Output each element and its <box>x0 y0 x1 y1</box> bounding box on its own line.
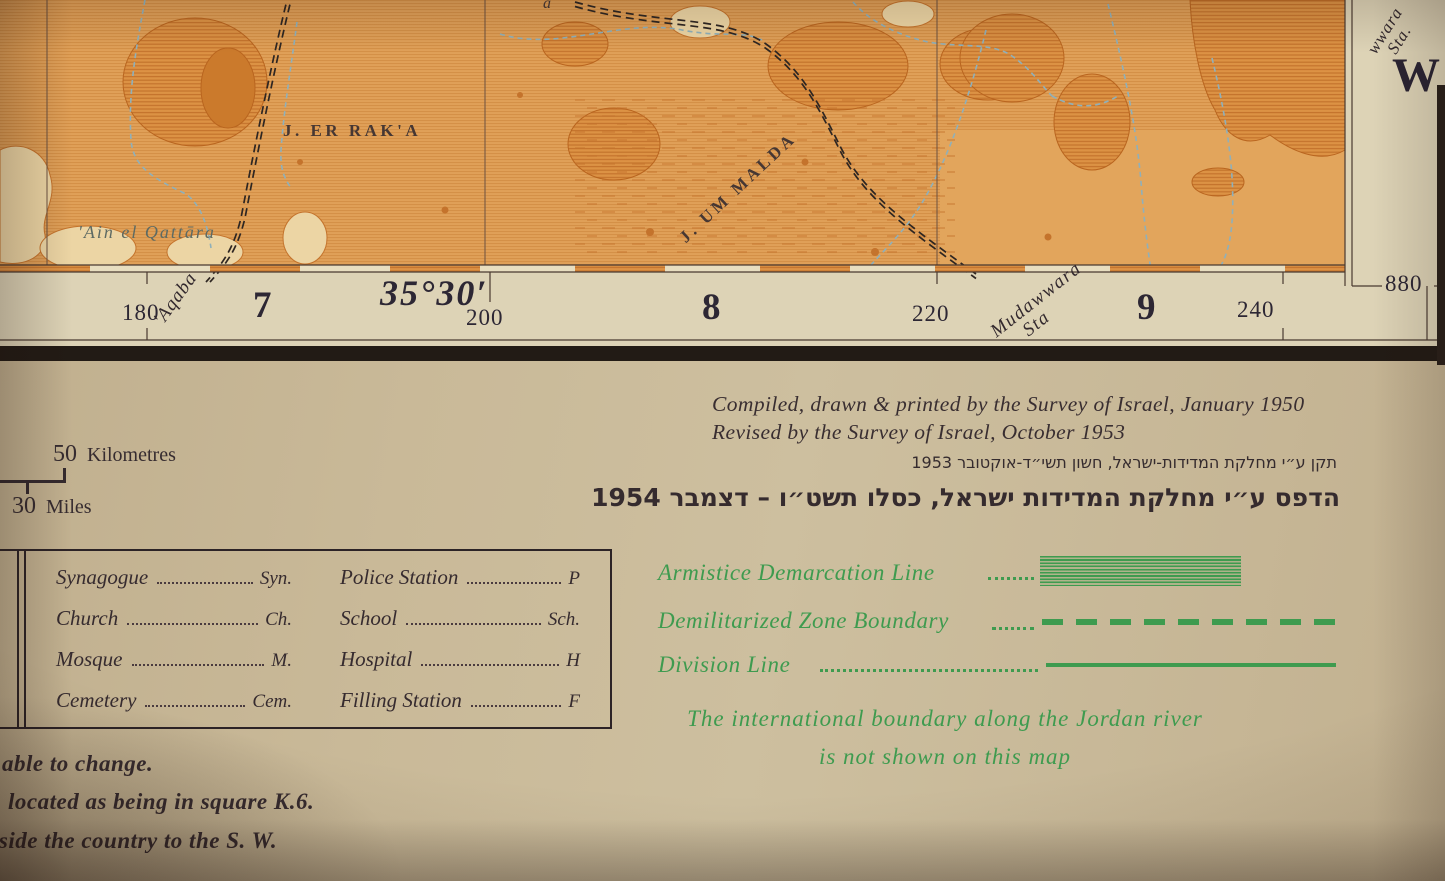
credit-line-1: Compiled, drawn & printed by the Survey … <box>712 392 1304 417</box>
hebrew-credit-2: הדפס ע״י מחלקת המדידות ישראל, כסלו תשט״ו… <box>591 483 1340 512</box>
legend-label: Synagogue <box>56 565 148 590</box>
grid-label-240: 240 <box>1237 297 1275 323</box>
legend-row-synagogue: SynagogueSyn. <box>56 565 292 590</box>
dotted-leader <box>471 705 561 707</box>
square-label-8: 8 <box>702 286 721 329</box>
grid-label-220: 220 <box>912 301 950 327</box>
hill-core <box>201 48 255 128</box>
dotted-leader <box>406 623 541 625</box>
map-photograph: J. ER RAK'A J. UM MALDA 'Ain el Qattāra … <box>0 0 1445 881</box>
boundary-note-line-2: is not shown on this map <box>595 744 1295 770</box>
legend-double-rule-1 <box>17 549 19 729</box>
boundary-note-line-1: The international boundary along the Jor… <box>595 706 1295 732</box>
legend-label: Police Station <box>340 565 458 590</box>
map-area: J. ER RAK'A J. UM MALDA 'Ain el Qattāra … <box>0 0 1445 348</box>
bottom-margin <box>0 272 1445 348</box>
marginal-note-3: tside the country to the S. W. <box>0 828 277 854</box>
square-label-9: 9 <box>1137 286 1156 329</box>
sheet-border-bar <box>0 346 1445 361</box>
legend-row-church: ChurchCh. <box>56 606 292 631</box>
northing-label-880: 880 <box>1385 271 1423 297</box>
legend-column-left: SynagogueSyn. ChurchCh. MosqueM. Cemeter… <box>56 565 292 713</box>
legend-abbr: Ch. <box>265 609 292 631</box>
division-line-symbol <box>1046 663 1336 667</box>
legend-row-police-station: Police StationP <box>340 565 580 590</box>
legend-row-cemetery: CemeteryCem. <box>56 688 292 713</box>
square-label-7: 7 <box>253 284 272 327</box>
scale-bar-tick-miles <box>26 480 29 494</box>
legend-row-hospital: HospitalH <box>340 647 580 672</box>
legend-label: School <box>340 606 397 631</box>
scale-km-unit: Kilometres <box>87 444 176 466</box>
sheet-letter-w: W <box>1392 48 1440 103</box>
credit-line-2: Revised by the Survey of Israel, October… <box>712 420 1125 445</box>
armistice-band-symbol <box>1040 556 1241 586</box>
legend-abbr: Syn. <box>260 568 292 590</box>
scale-miles-value: 30 <box>12 493 36 519</box>
legend-abbr: M. <box>271 650 292 672</box>
legend-abbr: P <box>568 568 580 590</box>
legend-label: Filling Station <box>340 688 462 713</box>
scale-bar-tick-km <box>63 468 66 482</box>
grid-label-200: 200 <box>466 305 504 331</box>
legend-label: Mosque <box>56 647 123 672</box>
scale-miles-unit: Miles <box>46 496 92 518</box>
dotted-leader <box>127 623 258 625</box>
marginal-note-1: able to change. <box>2 751 153 777</box>
legend-label: Hospital <box>340 647 412 672</box>
terrain-graphic <box>0 0 1445 348</box>
dmz-dash-symbol <box>1042 619 1342 625</box>
dotted-leader <box>132 664 265 666</box>
scale-km-value: 50 <box>53 441 77 467</box>
dotted-leader <box>145 705 245 707</box>
label-ain-el-qattara: 'Ain el Qattāra <box>78 222 216 243</box>
legend-row-school: SchoolSch. <box>340 606 580 631</box>
legend-column-right: Police StationP SchoolSch. HospitalH Fil… <box>340 565 580 713</box>
scale-miles-label: 30Miles <box>12 493 92 520</box>
legend-abbr: Sch. <box>548 609 580 631</box>
marginal-note-2: located as being in square K.6. <box>8 789 314 815</box>
sheet-border-right <box>1437 85 1445 365</box>
label-top-fragment: a <box>543 0 551 13</box>
scale-bar-line <box>0 480 66 483</box>
legend-abbr: F <box>568 691 580 713</box>
armistice-line-label: Armistice Demarcation Line <box>658 560 935 586</box>
legend-label: Church <box>56 606 118 631</box>
dotted-leader <box>421 664 559 666</box>
dmz-boundary-label: Demilitarized Zone Boundary <box>658 608 949 634</box>
label-jebel-er-raka: J. ER RAK'A <box>283 121 421 141</box>
hebrew-credit-1: תקן ע״י מחלקת המדידות-ישראל, חשון תשי״ד-… <box>911 453 1337 472</box>
scale-kilometres-label: 50Kilometres <box>53 441 176 468</box>
dmz-dots <box>992 626 1034 630</box>
division-dots <box>820 668 1038 672</box>
legend-row-mosque: MosqueM. <box>56 647 292 672</box>
division-line-label: Division Line <box>658 652 790 678</box>
dotted-leader <box>467 582 561 584</box>
armistice-dots <box>988 576 1034 580</box>
legend-double-rule-2 <box>24 549 26 729</box>
legend-abbr: H <box>566 650 580 672</box>
legend-label: Cemetery <box>56 688 136 713</box>
dotted-leader <box>157 582 253 584</box>
legend-row-filling-station: Filling StationF <box>340 688 580 713</box>
legend-abbr: Cem. <box>252 691 292 713</box>
